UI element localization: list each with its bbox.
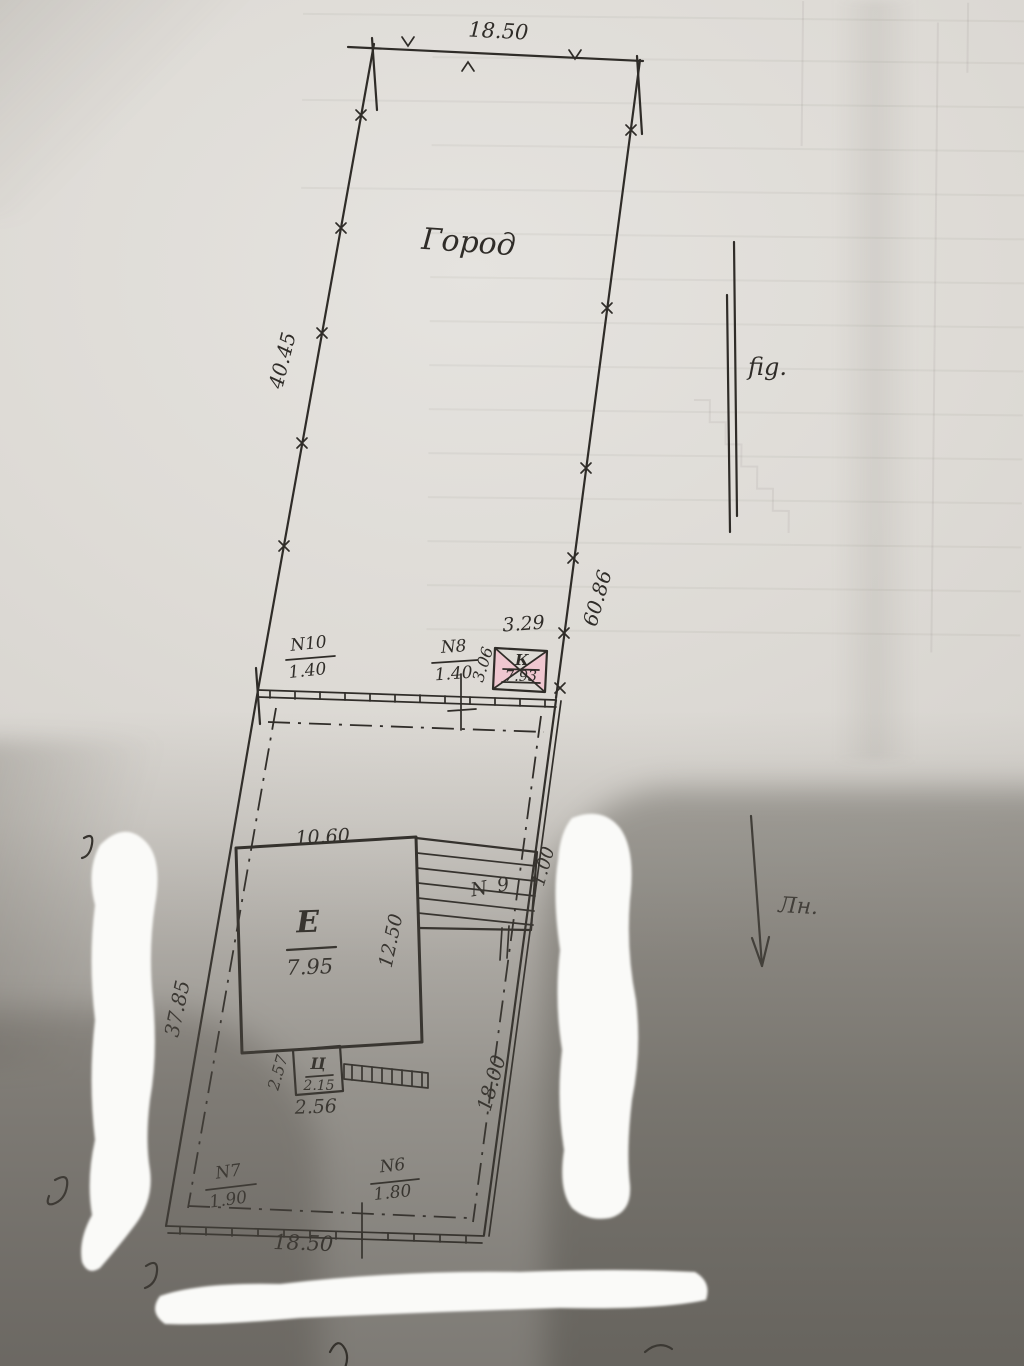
plot-plan-photo: 18.50 Город 40.45 60.86 fig. Лн. 3.29 3.… (0, 0, 1024, 1366)
blob-right (555, 814, 638, 1219)
blob-bottom (155, 1270, 708, 1324)
correction-fluid-blobs (0, 0, 1024, 1366)
blob-left (81, 832, 157, 1271)
